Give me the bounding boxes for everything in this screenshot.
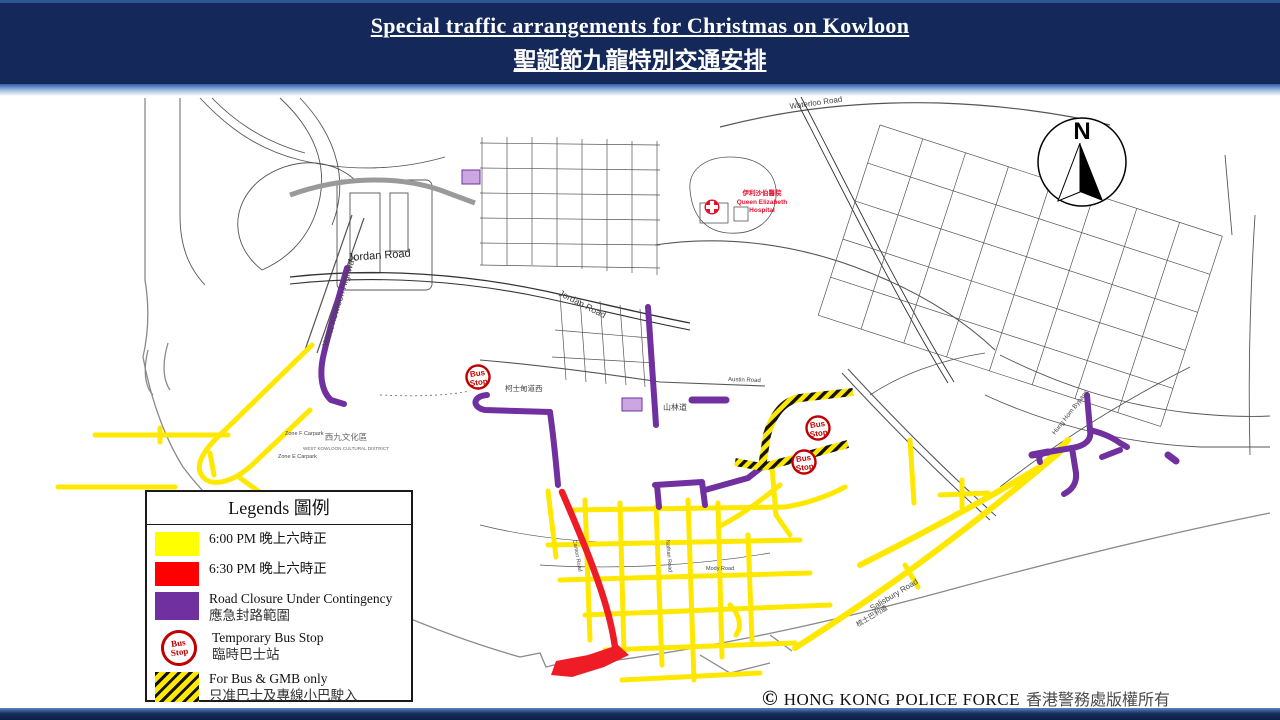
hospital-label-en2: Hospital [749,207,775,214]
copyright-text-zh: 香港警務處版權所有 [1026,686,1170,710]
legend-label-630pm: 6:30 PM 晚上六時正 [209,561,327,578]
hospital-label-zh: 伊利沙伯醫院 [742,188,783,197]
elevated-highway [290,180,475,203]
legend-label-bus-stop: Temporary Bus Stop 臨時巴士站 [212,630,324,664]
label-austin-road-west: 柯士甸道西 [505,383,543,393]
copyright-icon: © [762,688,778,709]
bottom-blue-bar [0,708,1280,720]
legend-swatch-yellow [155,532,199,556]
label-zone-f-carpark: Zone F Carpark [285,431,324,437]
legend-item-bus-gmb: For Bus & GMB only 只准巴士及專線小巴駛入 [155,671,403,705]
compass-rose: N [1038,118,1126,206]
legend-label-bus-stop-zh: 臨時巴士站 [212,647,280,662]
legend-title: Legends 圖例 [147,492,411,525]
label-hung-hom-bypass: Hung Hom Bypass [1051,389,1090,437]
legend-label-bus-stop-en: Temporary Bus Stop [212,630,324,645]
copyright-footer: © HONG KONG POLICE FORCE 香港警務處版權所有 [762,686,1170,710]
legend-swatch-red [155,562,199,586]
police-building-marker-2 [622,398,642,411]
label-wkcd-en: WEST KOWLOON CULTURAL DISTRICT [303,446,389,451]
legend-item-bus-stop: Bus Stop Temporary Bus Stop 臨時巴士站 [155,630,403,666]
legend-label-contingency: Road Closure Under Contingency 應急封路範圍 [209,591,392,625]
legend-label-bus-gmb-en: For Bus & GMB only [209,671,328,686]
page: Special traffic arrangements for Christm… [0,0,1280,720]
header-banner: Special traffic arrangements for Christm… [0,0,1280,84]
compass-north-label: N [1073,118,1090,145]
hospital-label-en1: Queen Elizabeth [737,199,788,206]
label-hillwood-road: 山林道 [663,402,687,412]
legend-label-contingency-en: Road Closure Under Contingency [209,591,392,606]
label-wkcd-zh: 西九文化區 [325,432,368,442]
legend-items: 6:00 PM 晚上六時正 6:30 PM 晚上六時正 Road Closure… [147,525,411,709]
legend-item-6pm: 6:00 PM 晚上六時正 [155,531,403,556]
bus-stop-icon-1: Bus Stop [465,364,491,390]
legend-label-bus-gmb: For Bus & GMB only 只准巴士及專線小巴駛入 [209,671,358,705]
legend-swatch-hatched [155,672,199,702]
label-jordan-road-1: Jordan Road [347,248,411,264]
legend-label-6pm: 6:00 PM 晚上六時正 [209,531,327,548]
bus-stop-legend-text2: Stop [170,647,189,658]
bus-stop-legend-icon: Bus Stop [159,627,200,668]
legend-item-contingency: Road Closure Under Contingency 應急封路範圍 [155,591,403,625]
page-title-en: Special traffic arrangements for Christm… [371,13,910,39]
roads-contingency-purple [321,268,1176,507]
legend-label-bus-gmb-zh: 只准巴士及專線小巴駛入 [209,688,358,703]
bus-stop-icon-2: Bus Stop [805,415,831,441]
legend-swatch-purple [155,592,199,620]
label-austin-road: Austin Road [728,377,761,384]
copyright-text-en: HONG KONG POLICE FORCE [784,690,1020,710]
label-zone-e-carpark: Zone E Carpark [278,454,317,460]
police-building-marker-1 [462,170,480,184]
page-title-zh: 聖誕節九龍特別交通安排 [514,41,767,75]
legend-label-contingency-zh: 應急封路範圍 [209,608,290,623]
label-west-kowloon-highway: West Kowloon Highway [320,254,357,348]
label-mody-road: Mody Road [706,566,734,572]
hospital-marker: 伊利沙伯醫院 Queen Elizabeth Hospital [705,188,788,215]
legend-item-630pm: 6:30 PM 晚上六時正 [155,561,403,586]
legend-box: Legends 圖例 6:00 PM 晚上六時正 6:30 PM 晚上六時正 R… [145,490,413,702]
